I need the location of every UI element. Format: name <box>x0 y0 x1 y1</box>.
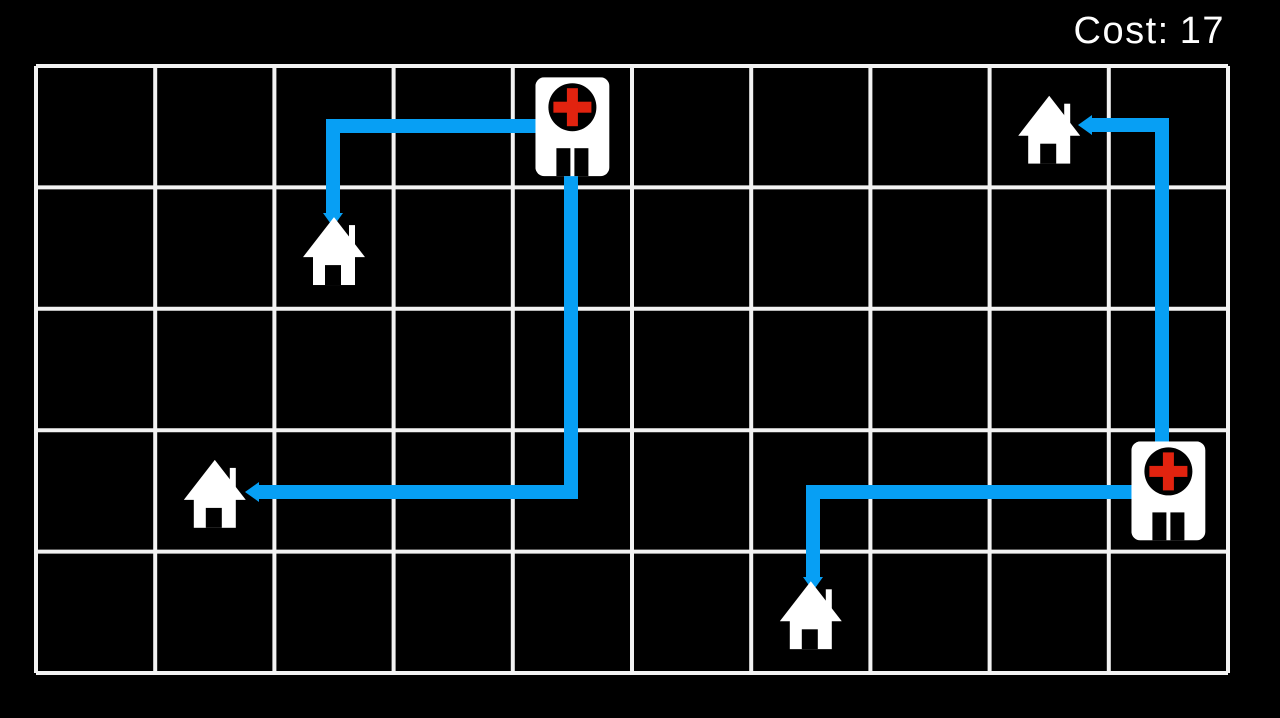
building-house-2[interactable] <box>184 460 246 528</box>
building-hospital-1[interactable] <box>535 77 609 176</box>
house-icon <box>780 581 842 649</box>
house-icon <box>184 460 246 528</box>
building-hospital-2[interactable] <box>1131 441 1205 540</box>
game-screen: Cost:17 <box>0 0 1280 718</box>
building-house-1[interactable] <box>303 217 365 285</box>
game-board[interactable] <box>0 0 1280 718</box>
route-3-arrowhead <box>1078 115 1092 135</box>
route-4[interactable] <box>803 492 1140 591</box>
route-3-line[interactable] <box>1092 125 1162 452</box>
route-4-line[interactable] <box>813 492 1140 577</box>
route-2-arrowhead <box>245 482 259 502</box>
cost-display: Cost:17 <box>1074 10 1225 53</box>
house-icon <box>303 217 365 285</box>
building-house-3[interactable] <box>1018 96 1080 164</box>
hospital-icon <box>535 77 609 176</box>
route-2-line[interactable] <box>259 170 571 492</box>
cost-value: 17 <box>1180 10 1225 52</box>
building-house-4[interactable] <box>780 581 842 649</box>
cost-label: Cost: <box>1074 10 1170 52</box>
house-icon <box>1018 96 1080 164</box>
route-2[interactable] <box>245 170 571 502</box>
hospital-icon <box>1131 441 1205 540</box>
route-3[interactable] <box>1078 115 1162 452</box>
